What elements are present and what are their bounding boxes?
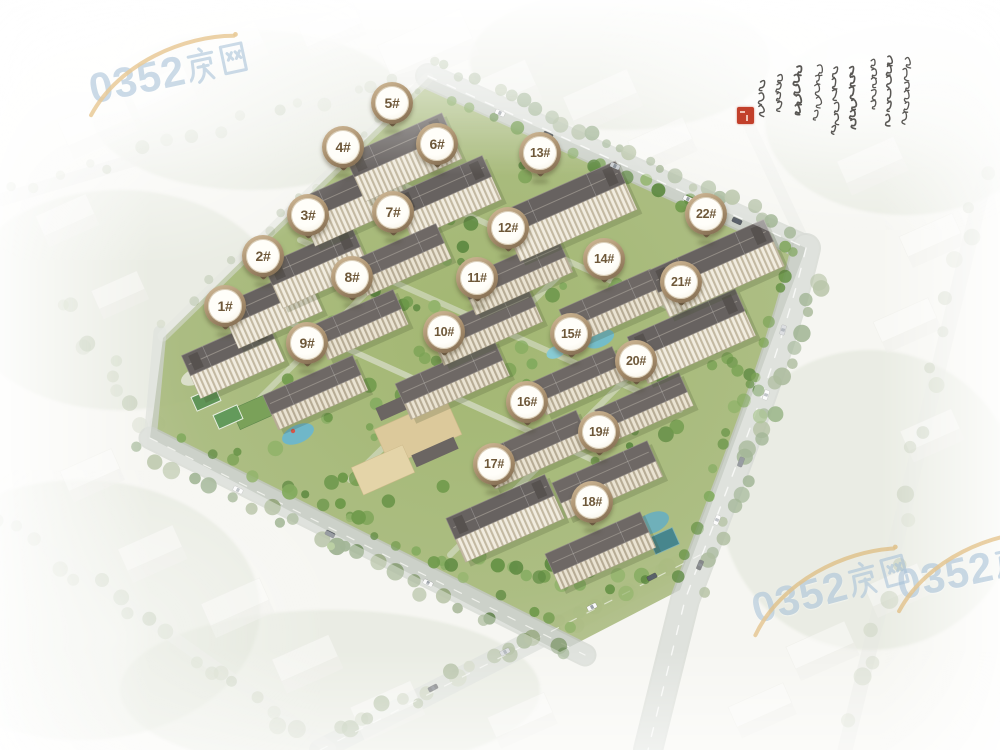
marker-label: 7# [386, 204, 401, 220]
marker-face: 8# [335, 260, 369, 294]
building-marker-19[interactable]: 19# [577, 411, 621, 469]
building-marker-4[interactable]: 4# [321, 126, 365, 184]
marker-face: 22# [689, 197, 723, 231]
marker-ring: 19# [578, 411, 620, 453]
building-marker-7[interactable]: 7# [371, 191, 415, 249]
aerial-masterplan: 0352 0352 0352 1# [0, 0, 1000, 750]
marker-ring: 12# [487, 207, 529, 249]
marker-ring: 13# [519, 132, 561, 174]
marker-shadow [334, 173, 352, 178]
marker-face: 16# [510, 385, 544, 419]
marker-face: 7# [376, 195, 410, 229]
marker-shadow [518, 428, 536, 433]
marker-shadow [216, 332, 234, 337]
marker-ring: 7# [372, 191, 414, 233]
building-marker-16[interactable]: 16# [505, 381, 549, 439]
marker-ring: 8# [331, 256, 373, 298]
marker-shadow [435, 358, 453, 363]
marker-ring: 15# [550, 313, 592, 355]
marker-ring: 1# [204, 285, 246, 327]
marker-ring: 18# [571, 481, 613, 523]
marker-ring: 22# [685, 193, 727, 235]
marker-ring: 9# [286, 322, 328, 364]
marker-shadow [343, 303, 361, 308]
marker-face: 13# [523, 136, 557, 170]
building-marker-13[interactable]: 13# [518, 132, 562, 190]
marker-label: 4# [336, 139, 351, 155]
marker-label: 5# [385, 95, 400, 111]
marker-ring: 20# [615, 340, 657, 382]
marker-shadow [583, 528, 601, 533]
marker-label: 18# [582, 495, 602, 509]
marker-shadow [383, 129, 401, 134]
marker-shadow [531, 179, 549, 184]
marker-label: 21# [671, 275, 691, 289]
building-marker-12[interactable]: 12# [486, 207, 530, 265]
marker-face: 1# [208, 289, 242, 323]
marker-label: 8# [345, 269, 360, 285]
building-marker-2[interactable]: 2# [241, 235, 285, 293]
marker-face: 6# [420, 127, 454, 161]
marker-ring: 4# [322, 126, 364, 168]
marker-label: 19# [589, 425, 609, 439]
marker-face: 10# [427, 315, 461, 349]
building-marker-22[interactable]: 22# [684, 193, 728, 251]
building-marker-10[interactable]: 10# [422, 311, 466, 369]
building-marker-9[interactable]: 9# [285, 322, 329, 380]
building-marker-20[interactable]: 20# [614, 340, 658, 398]
marker-shadow [254, 282, 272, 287]
marker-face: 14# [587, 242, 621, 276]
marker-ring: 5# [371, 82, 413, 124]
marker-shadow [299, 241, 317, 246]
marker-face: 3# [291, 198, 325, 232]
building-markers-layer: 1# 2# 3# 4# 5# 6# [0, 0, 1000, 750]
marker-ring: 2# [242, 235, 284, 277]
marker-face: 17# [477, 447, 511, 481]
marker-face: 9# [290, 326, 324, 360]
marker-face: 2# [246, 239, 280, 273]
building-marker-1[interactable]: 1# [203, 285, 247, 343]
marker-shadow [590, 458, 608, 463]
marker-ring: 3# [287, 194, 329, 236]
marker-ring: 21# [660, 261, 702, 303]
building-marker-15[interactable]: 15# [549, 313, 593, 371]
marker-label: 3# [301, 207, 316, 223]
marker-label: 12# [498, 221, 518, 235]
marker-ring: 14# [583, 238, 625, 280]
marker-label: 17# [484, 457, 504, 471]
marker-shadow [298, 369, 316, 374]
building-marker-18[interactable]: 18# [570, 481, 614, 539]
marker-shadow [468, 304, 486, 309]
building-marker-17[interactable]: 17# [472, 443, 516, 501]
marker-shadow [672, 308, 690, 313]
marker-shadow [485, 490, 503, 495]
building-marker-11[interactable]: 11# [455, 257, 499, 315]
marker-label: 20# [626, 354, 646, 368]
marker-face: 15# [554, 317, 588, 351]
marker-face: 18# [575, 485, 609, 519]
marker-ring: 16# [506, 381, 548, 423]
building-marker-3[interactable]: 3# [286, 194, 330, 252]
marker-label: 16# [517, 395, 537, 409]
building-marker-14[interactable]: 14# [582, 238, 626, 296]
marker-face: 4# [326, 130, 360, 164]
marker-label: 14# [594, 252, 614, 266]
marker-ring: 10# [423, 311, 465, 353]
marker-shadow [697, 240, 715, 245]
marker-shadow [627, 387, 645, 392]
marker-label: 15# [561, 327, 581, 341]
marker-label: 2# [256, 248, 271, 264]
marker-ring: 6# [416, 123, 458, 165]
building-marker-5[interactable]: 5# [370, 82, 414, 140]
marker-label: 22# [696, 207, 716, 221]
building-marker-21[interactable]: 21# [659, 261, 703, 319]
marker-shadow [384, 238, 402, 243]
marker-face: 19# [582, 415, 616, 449]
building-marker-8[interactable]: 8# [330, 256, 374, 314]
marker-shadow [428, 170, 446, 175]
marker-ring: 17# [473, 443, 515, 485]
marker-label: 6# [430, 136, 445, 152]
marker-face: 20# [619, 344, 653, 378]
marker-shadow [499, 254, 517, 259]
marker-label: 11# [467, 271, 486, 285]
marker-label: 9# [300, 335, 315, 351]
marker-face: 21# [664, 265, 698, 299]
building-marker-6[interactable]: 6# [415, 123, 459, 181]
marker-face: 12# [491, 211, 525, 245]
marker-shadow [595, 285, 613, 290]
marker-face: 11# [460, 261, 494, 295]
marker-face: 5# [375, 86, 409, 120]
marker-label: 13# [530, 146, 550, 160]
marker-shadow [562, 360, 580, 365]
marker-label: 1# [218, 298, 233, 314]
marker-label: 10# [434, 325, 454, 339]
